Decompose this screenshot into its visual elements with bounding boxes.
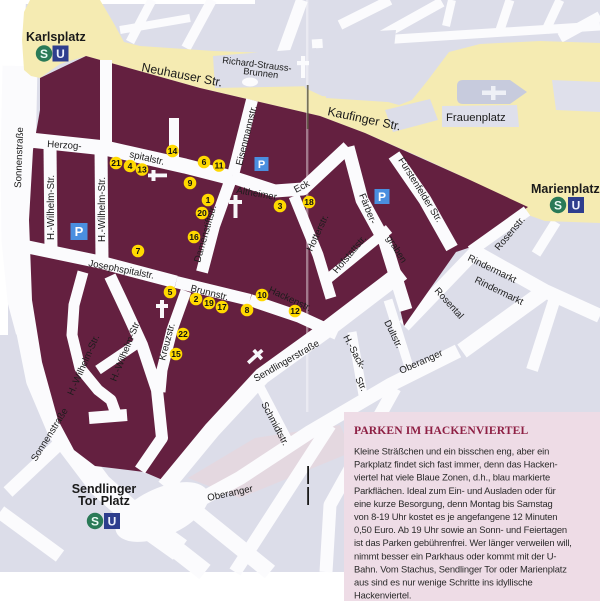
svg-text:Frauenplatz: Frauenplatz	[446, 112, 506, 124]
svg-text:22: 22	[178, 329, 188, 339]
svg-text:2: 2	[194, 294, 199, 304]
svg-text:von 8-19 Uhr kostet es je ange: von 8-19 Uhr kostet es je angefangene 12…	[354, 511, 557, 522]
svg-text:Bahn. Vom Stachus, Sendlinger: Bahn. Vom Stachus, Sendlinger Tor oder M…	[354, 563, 567, 574]
svg-text:H.-Wilhelm-Str.: H.-Wilhelm-Str.	[46, 175, 57, 240]
svg-text:4: 4	[128, 161, 133, 171]
svg-text:viertel hat viele Blaue Zonen,: viertel hat viele Blaue Zonen, d.h., bla…	[354, 472, 550, 483]
svg-text:S: S	[40, 47, 48, 61]
svg-text:Hackenviertel.: Hackenviertel.	[354, 590, 411, 601]
svg-text:20: 20	[197, 208, 207, 218]
svg-text:Kleine Sträßchen und ein bissc: Kleine Sträßchen und ein bisschen eng, a…	[354, 446, 549, 457]
svg-text:10: 10	[257, 290, 267, 300]
svg-text:16: 16	[189, 232, 199, 242]
svg-text:nimmt besser ein Parkhaus oder: nimmt besser ein Parkhaus oder kommt mit…	[354, 550, 556, 561]
svg-text:7: 7	[136, 246, 141, 256]
svg-text:Parkplatz findet sich fast imm: Parkplatz findet sich fast immer, denn d…	[354, 459, 558, 470]
svg-text:ist das Parken gebührenfrei. W: ist das Parken gebührenfrei. Wer länger …	[354, 537, 572, 548]
svg-text:12: 12	[290, 306, 300, 316]
svg-text:3: 3	[278, 201, 283, 211]
svg-text:8: 8	[245, 305, 250, 315]
svg-text:P: P	[75, 224, 84, 239]
svg-text:Sonnenstraße: Sonnenstraße	[13, 127, 26, 188]
svg-text:S: S	[91, 515, 99, 529]
svg-text:S: S	[554, 199, 562, 213]
svg-text:9: 9	[188, 178, 193, 188]
svg-text:18: 18	[304, 197, 314, 207]
svg-text:0,50 Euro. Ab 19 Uhr sowie an: 0,50 Euro. Ab 19 Uhr sowie an Sonn- und …	[354, 524, 567, 535]
svg-text:6: 6	[202, 157, 207, 167]
svg-text:14: 14	[168, 146, 178, 156]
svg-text:U: U	[572, 199, 581, 213]
svg-text:5: 5	[168, 287, 173, 297]
svg-text:eine kurze Besorgung, denn Mo: eine kurze Besorgung, denn Montag bis Sa…	[354, 498, 553, 509]
svg-text:U: U	[56, 47, 65, 61]
svg-text:H.-Wilhelm-Str.: H.-Wilhelm-Str.	[97, 177, 108, 242]
svg-text:PARKEN IM HACKENVIERTEL: PARKEN IM HACKENVIERTEL	[354, 424, 528, 437]
svg-text:Marienplatz: Marienplatz	[531, 182, 600, 196]
svg-text:17: 17	[217, 302, 227, 312]
svg-text:21: 21	[111, 158, 121, 168]
svg-text:1: 1	[206, 195, 211, 205]
svg-text:P: P	[378, 190, 386, 204]
svg-text:Parkflächen. Ideal zum Ein- un: Parkflächen. Ideal zum Ein- und Ausladen…	[354, 485, 556, 496]
svg-text:P: P	[258, 159, 265, 171]
svg-text:19: 19	[204, 298, 214, 308]
svg-text:15: 15	[171, 349, 181, 359]
svg-text:13: 13	[137, 165, 147, 175]
svg-text:Karlsplatz: Karlsplatz	[26, 30, 86, 44]
svg-text:aus sind es nur wenige Schritt: aus sind es nur wenige Schritte ins idyl…	[354, 577, 533, 588]
svg-text:U: U	[108, 515, 117, 529]
svg-text:11: 11	[214, 161, 223, 171]
svg-text:Tor Platz: Tor Platz	[78, 494, 130, 508]
